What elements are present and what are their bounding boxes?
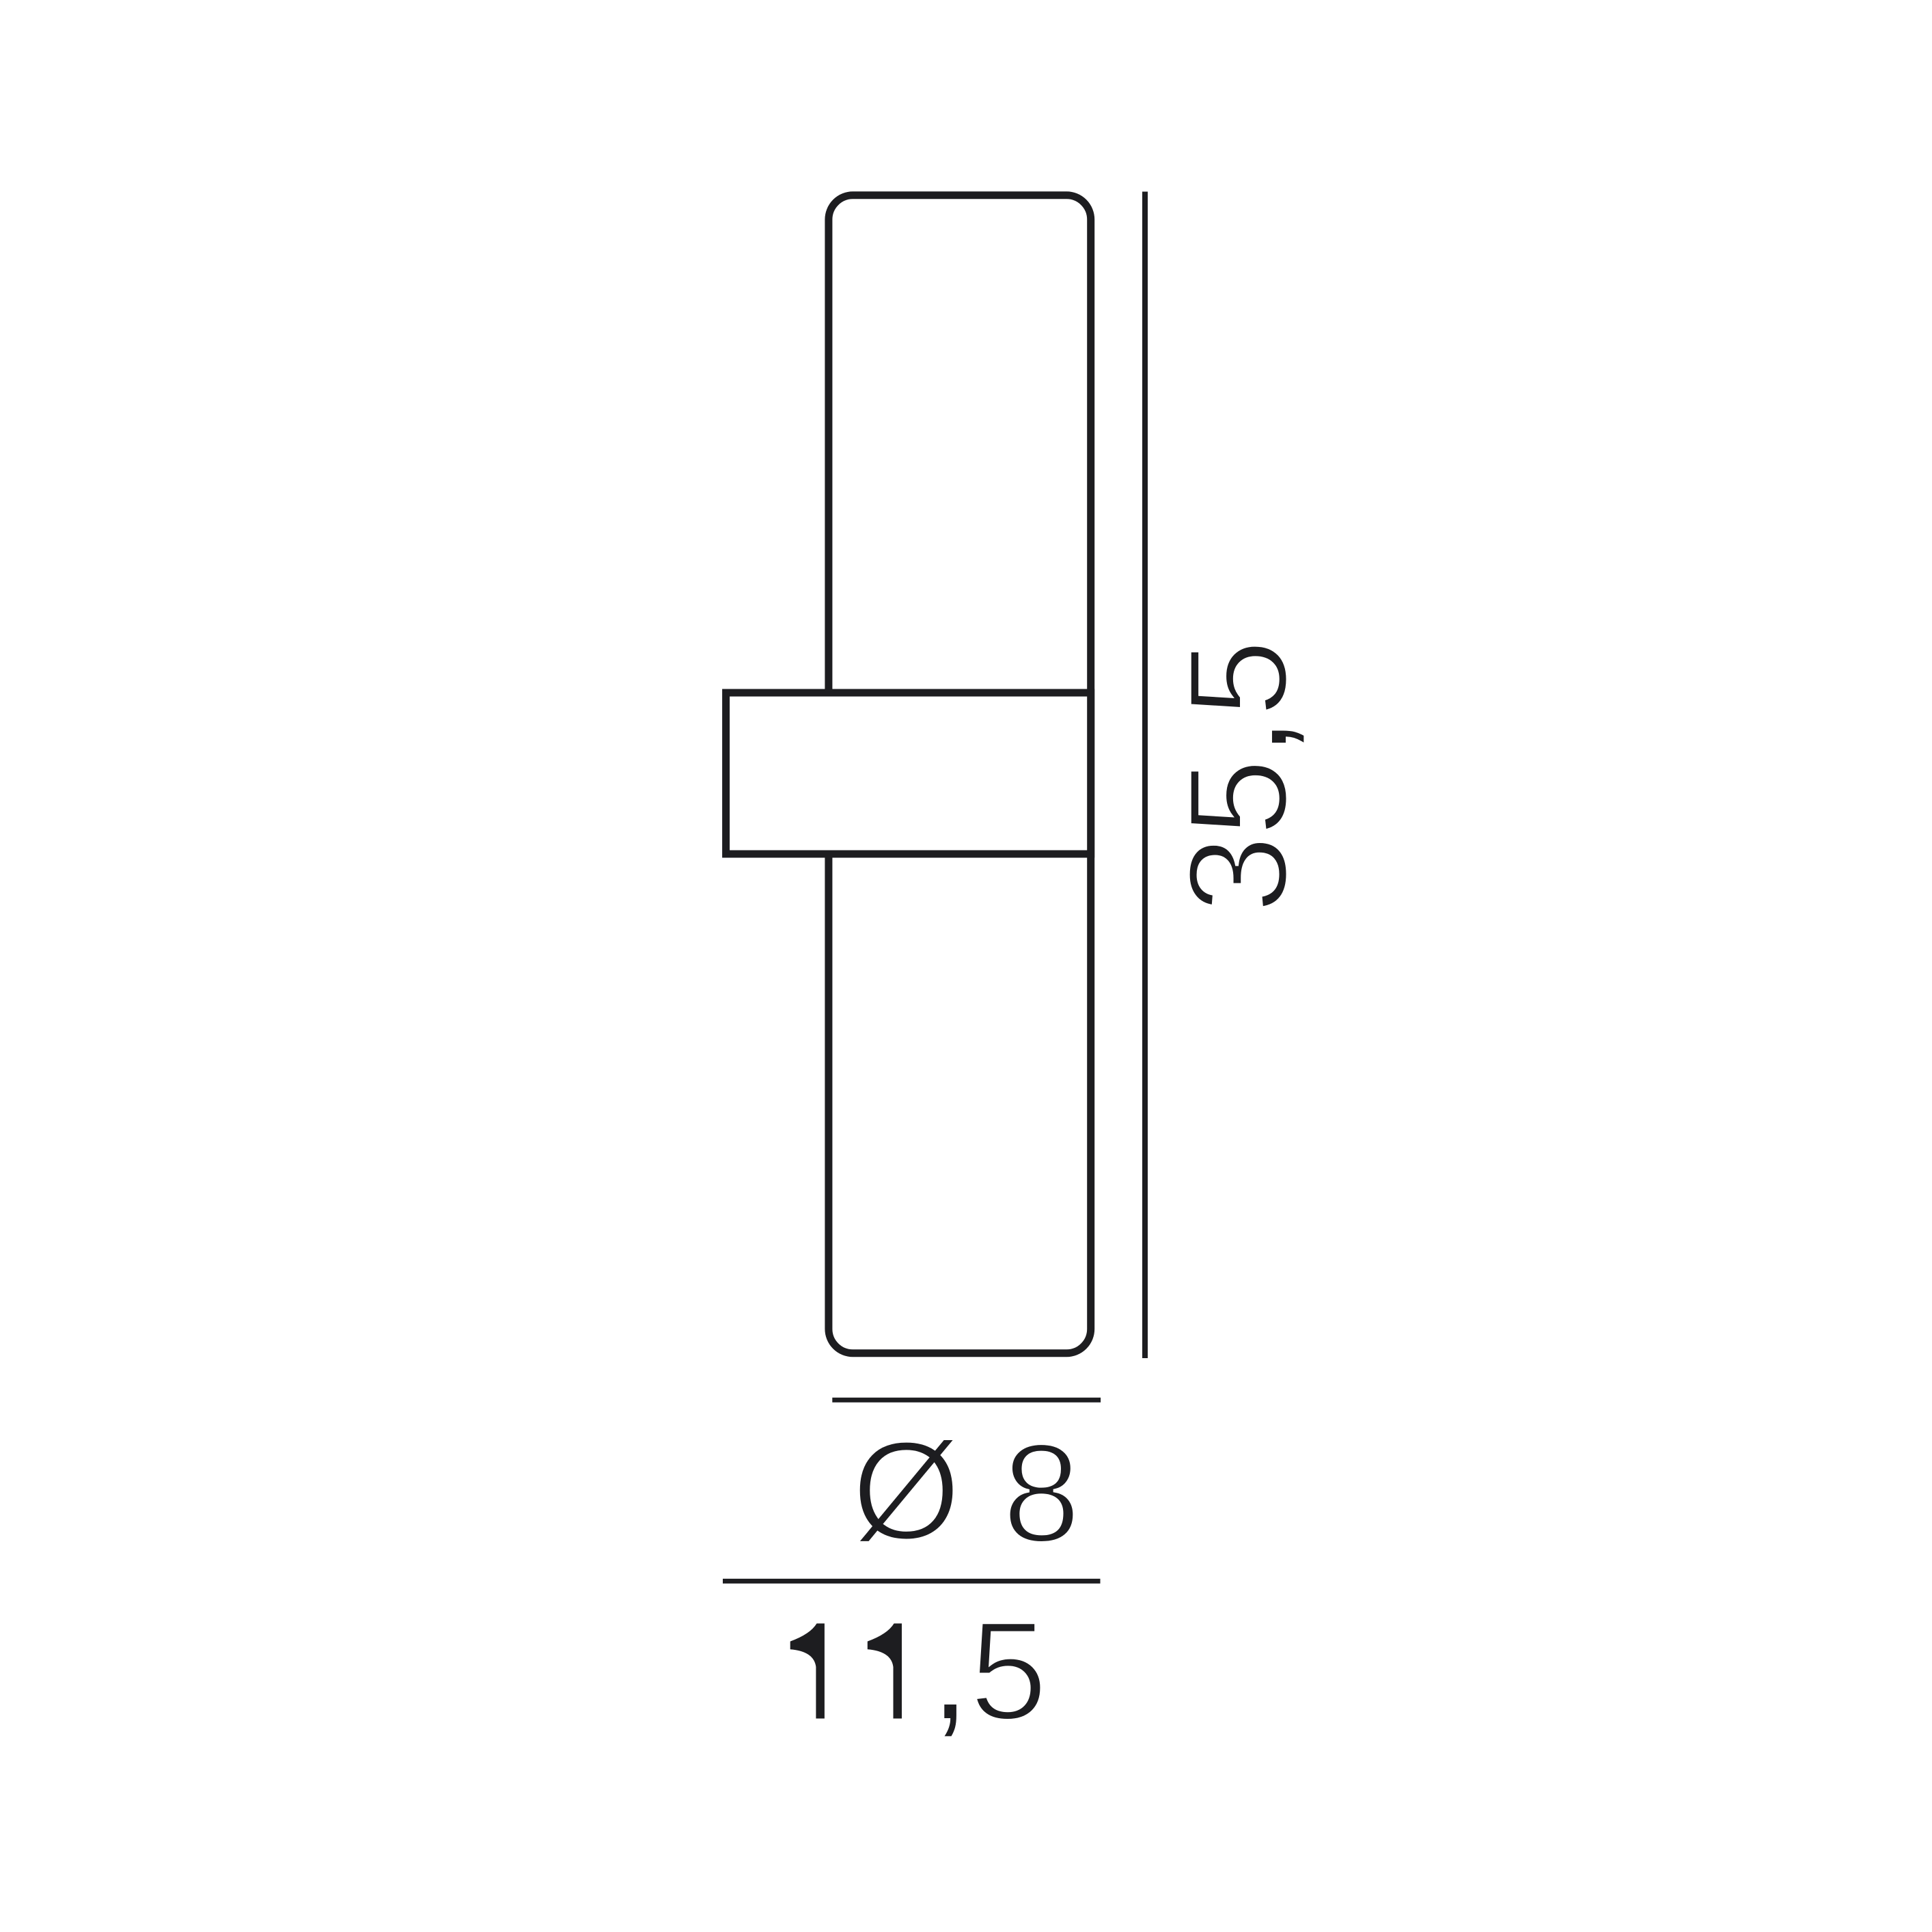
svg-text:Ø: Ø — [852, 1412, 961, 1569]
svg-text:5: 5 — [1159, 639, 1316, 717]
svg-text:,: , — [1159, 717, 1316, 756]
svg-text:5: 5 — [1159, 758, 1316, 837]
svg-text:8: 8 — [1002, 1415, 1081, 1572]
svg-text:3: 3 — [1159, 835, 1316, 913]
svg-text:,: , — [930, 1592, 969, 1749]
svg-text:5: 5 — [969, 1592, 1048, 1750]
